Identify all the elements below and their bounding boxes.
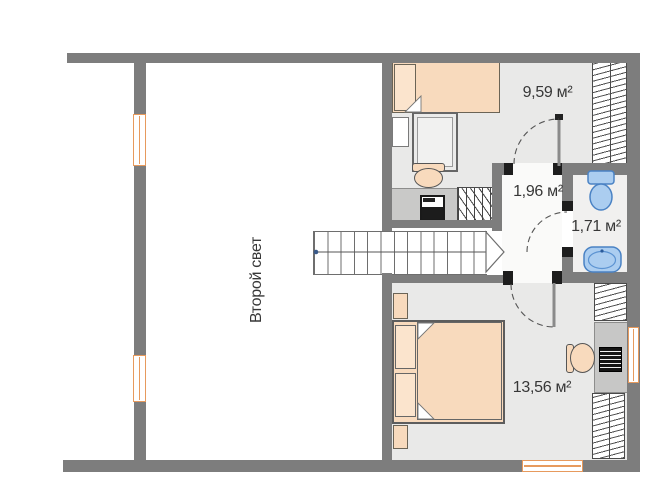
chair-seat-icon bbox=[414, 168, 443, 188]
void-room-label: Второй свет bbox=[248, 210, 268, 350]
appliance-door bbox=[422, 205, 443, 219]
mattress-icon bbox=[417, 322, 502, 420]
window-icon-bottom bbox=[522, 460, 583, 472]
door-jamb bbox=[562, 201, 573, 211]
stairs-icon bbox=[313, 231, 487, 275]
wall-bathroom-top bbox=[562, 163, 627, 175]
room-area-label-hallway: 1,96 м² bbox=[503, 183, 573, 201]
wall-top bbox=[67, 53, 640, 63]
wall-bedroom-top-left bbox=[382, 275, 503, 283]
window-icon-right bbox=[628, 327, 639, 383]
desk-top-surface bbox=[417, 117, 453, 167]
shelf-icon bbox=[392, 117, 409, 147]
wall-mid-lower bbox=[382, 273, 392, 460]
door-jamb bbox=[553, 163, 562, 175]
wall-bedroom-top-right bbox=[562, 272, 627, 283]
appliance-icon bbox=[420, 195, 445, 221]
wardrobe-icon-bedroom-bottom-right bbox=[592, 393, 625, 459]
window-mullion bbox=[633, 329, 635, 381]
computer-monitor-icon bbox=[599, 347, 622, 372]
door-jamb bbox=[504, 163, 513, 175]
closet-small-icon bbox=[457, 187, 493, 221]
nightstand-icon bbox=[393, 293, 408, 319]
window-mullion bbox=[139, 116, 141, 164]
pillow-icon bbox=[395, 373, 416, 417]
pillow-icon bbox=[394, 64, 416, 111]
chair-seat-icon bbox=[570, 343, 595, 373]
wall-mid-upper bbox=[382, 62, 392, 231]
wardrobe-icon-top-room bbox=[592, 62, 627, 165]
window-icon-left-lower bbox=[133, 355, 146, 402]
window-icon-left-upper bbox=[133, 114, 146, 166]
room-area-label-bathroom: 1,71 м² bbox=[562, 218, 630, 236]
wardrobe-icon-bedroom-top-right bbox=[594, 283, 627, 321]
floor-plan: 9,59 м² 1,96 м² 1,71 м² 13,56 м² Второй … bbox=[0, 0, 658, 502]
nightstand-icon bbox=[393, 425, 408, 449]
window-mullion bbox=[139, 357, 141, 400]
door-jamb bbox=[503, 271, 513, 285]
wall-right bbox=[627, 53, 640, 472]
wardrobe-divider bbox=[610, 63, 611, 164]
door-jamb bbox=[562, 247, 573, 257]
pillow-icon bbox=[395, 325, 416, 369]
appliance-button-bar bbox=[423, 198, 435, 202]
door-jamb bbox=[552, 271, 562, 284]
hallway-floor bbox=[502, 163, 562, 283]
room-area-label-bedroom-bottom: 13,56 м² bbox=[498, 379, 586, 397]
window-mullion bbox=[524, 465, 581, 467]
room-area-label-bedroom-top: 9,59 м² bbox=[505, 84, 590, 102]
wall-nook-bottom bbox=[382, 220, 502, 228]
wardrobe-divider bbox=[609, 394, 610, 458]
